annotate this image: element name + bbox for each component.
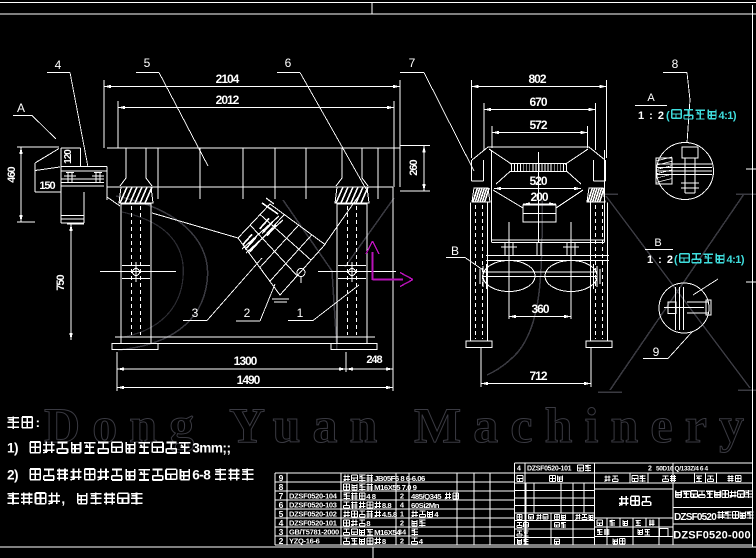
svg-text:1 : 2: 1 : 2	[638, 110, 665, 122]
svg-text:4:1): 4:1)	[719, 110, 737, 122]
svg-text:3: 3	[192, 306, 199, 320]
svg-text:3mm;;: 3mm;;	[192, 441, 230, 456]
svg-text:DZSF0520-000: DZSF0520-000	[673, 530, 751, 542]
svg-text:4: 4	[55, 58, 62, 72]
svg-text:(: (	[674, 254, 678, 266]
svg-text:50D16 Q/133Z/4 6 4: 50D16 Q/133Z/4 6 4	[656, 466, 708, 473]
svg-text:200: 200	[530, 190, 548, 204]
svg-text:1: 1	[400, 510, 404, 519]
svg-text:2): 2)	[7, 468, 18, 483]
svg-text:750: 750	[55, 274, 67, 290]
svg-text:2: 2	[400, 519, 404, 528]
svg-text:A: A	[647, 92, 655, 104]
svg-text:,: ,	[61, 492, 64, 507]
svg-text:150: 150	[39, 180, 55, 192]
svg-text:34: 34	[398, 528, 407, 537]
svg-text:2104: 2104	[216, 72, 240, 86]
svg-text:DZSF0520-102: DZSF0520-102	[289, 510, 337, 519]
svg-text:GB/T5781-2000: GB/T5781-2000	[289, 528, 339, 537]
svg-text:60Si2Mn: 60Si2Mn	[411, 501, 440, 510]
svg-text:7: 7	[409, 56, 416, 70]
svg-text:M16X55 7.0 9: M16X55 7.0 9	[374, 483, 418, 492]
svg-text:A: A	[17, 101, 25, 115]
svg-text:4 8: 4 8	[366, 492, 376, 501]
svg-text:DZSF0520: DZSF0520	[674, 512, 717, 523]
svg-text:670: 670	[529, 95, 547, 109]
svg-text:YZQ-16-6: YZQ-16-6	[289, 537, 320, 546]
svg-text:(: (	[666, 110, 670, 122]
svg-text:JB05F6 8 6-6.06: JB05F6 8 6-6.06	[374, 474, 426, 483]
svg-text:802: 802	[528, 72, 546, 86]
svg-text:1): 1)	[7, 441, 18, 456]
svg-text:460: 460	[6, 166, 18, 182]
svg-text:DZSF0520-103: DZSF0520-103	[289, 501, 337, 510]
svg-text:2: 2	[400, 537, 404, 546]
svg-text:1: 1	[297, 306, 304, 320]
svg-text::: :	[36, 415, 40, 430]
svg-text:2: 2	[400, 492, 404, 501]
svg-text:572: 572	[529, 118, 547, 132]
svg-text:2012: 2012	[216, 93, 240, 107]
svg-text:1 : 2: 1 : 2	[647, 254, 674, 266]
svg-text:5: 5	[144, 56, 151, 70]
svg-text:B: B	[451, 244, 459, 258]
svg-text:360: 360	[531, 302, 549, 316]
svg-text:712: 712	[529, 369, 547, 383]
svg-text:6: 6	[285, 56, 292, 70]
svg-text:260: 260	[408, 159, 420, 175]
svg-text:2: 2	[244, 306, 251, 320]
svg-text:8: 8	[672, 57, 679, 71]
svg-text:DZSF0520-101: DZSF0520-101	[527, 466, 572, 473]
svg-text:1490: 1490	[237, 373, 261, 387]
svg-text:9: 9	[653, 345, 660, 359]
svg-text:4: 4	[517, 466, 521, 473]
svg-text:DZSF0520-101: DZSF0520-101	[289, 519, 337, 528]
svg-text:2: 2	[648, 466, 652, 473]
svg-text:4.5.8: 4.5.8	[382, 510, 398, 519]
svg-text:8.8: 8.8	[382, 501, 392, 510]
svg-text:2: 2	[279, 536, 284, 546]
svg-text:1300: 1300	[234, 354, 258, 368]
svg-text:B: B	[654, 237, 661, 249]
svg-text:120: 120	[63, 149, 74, 164]
svg-text:248: 248	[366, 354, 382, 366]
svg-text:DZSF0520-104: DZSF0520-104	[289, 492, 338, 501]
svg-text:6-8: 6-8	[192, 468, 211, 483]
svg-text:4:1): 4:1)	[727, 254, 745, 266]
svg-text:485/Q345: 485/Q345	[411, 492, 442, 501]
